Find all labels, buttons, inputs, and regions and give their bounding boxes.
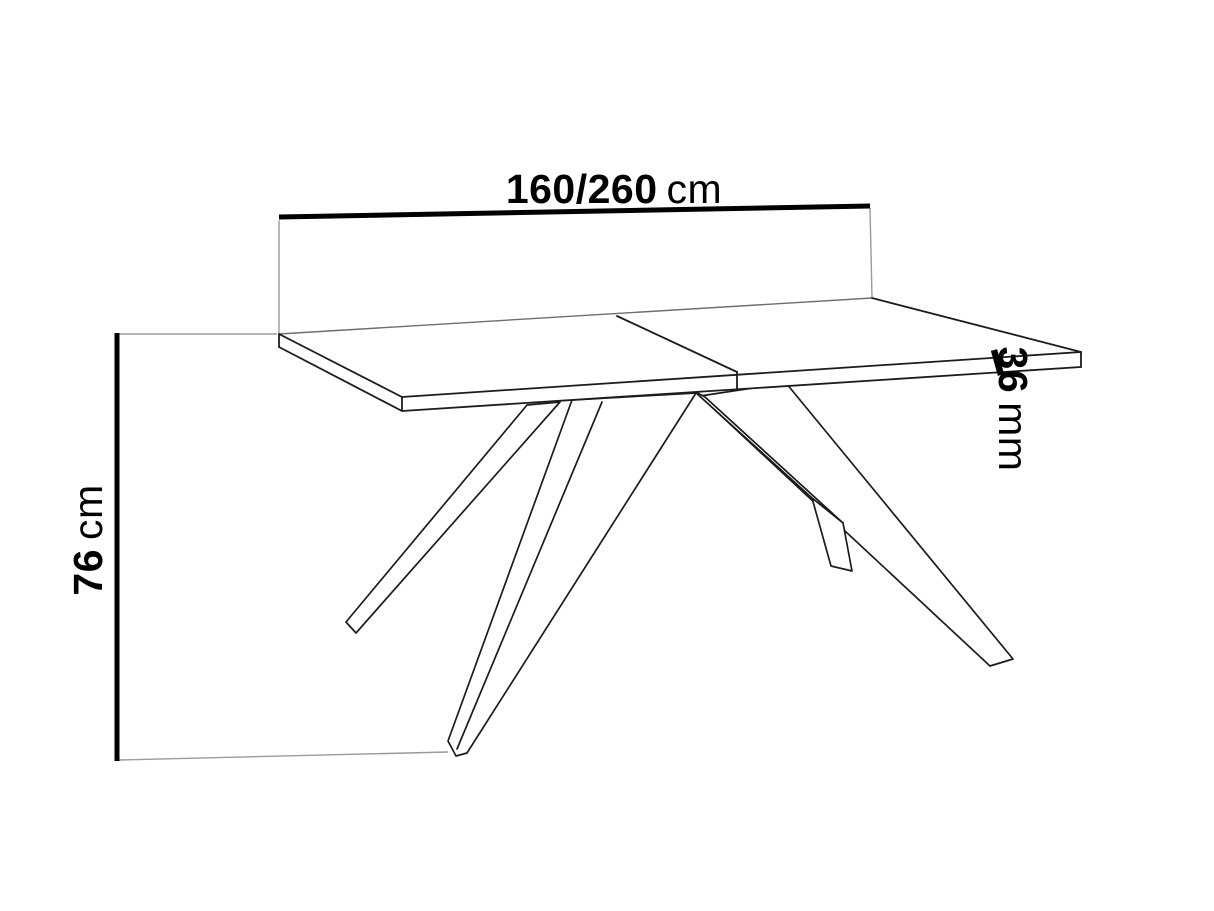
table-legs: [346, 383, 1013, 756]
width-value: 160/260: [506, 166, 658, 212]
height-unit: cm: [65, 484, 111, 540]
height-value: 76: [65, 549, 111, 596]
height-dimension-label: 76cm: [65, 455, 111, 625]
leg-front-right: [700, 383, 1013, 666]
height-extension-bottom: [119, 752, 448, 760]
table-dimensions-diagram: 160/260cm 76cm 36mm: [0, 0, 1214, 911]
leg-front-left: [448, 393, 696, 756]
thickness-value: 36: [990, 347, 1036, 394]
thickness-dimension-label: 36mm: [990, 324, 1036, 494]
width-extension-right: [870, 208, 872, 297]
width-unit: cm: [667, 166, 723, 212]
thickness-unit: mm: [990, 402, 1036, 471]
width-dimension-label: 160/260cm: [414, 166, 814, 212]
